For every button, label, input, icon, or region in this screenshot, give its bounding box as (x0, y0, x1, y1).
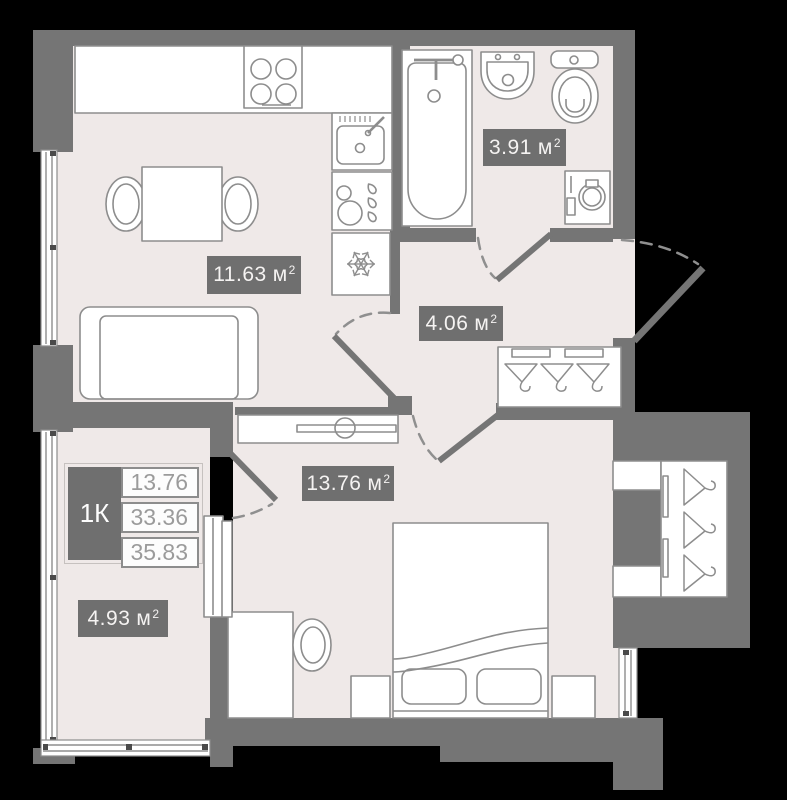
tv (297, 425, 396, 432)
refrigerator-icon (332, 233, 390, 295)
window-balcony-left (41, 430, 57, 744)
kitchen-sink-icon (332, 113, 392, 170)
unit-type-cell: 1К (68, 467, 121, 560)
area-label-balcony: 4.93м2 (78, 600, 168, 637)
dining-table (142, 167, 222, 241)
floor-plan-svg (0, 0, 787, 800)
sofa (80, 307, 258, 399)
hallway-closet (498, 347, 621, 407)
window-living-left (41, 150, 57, 346)
balcony-door-unit (204, 516, 232, 617)
dining-chair-left (106, 177, 146, 231)
area-summary-table: 1К 13.76 33.36 35.83 (64, 463, 203, 564)
toilet-icon (551, 51, 598, 123)
floor-plan-canvas: 11.63м2 3.91м2 4.06м2 13.76м2 4.93м2 1К … (0, 0, 787, 800)
nightstand-left (351, 676, 390, 718)
nightstand-right (552, 676, 595, 718)
area-values-column: 13.76 33.36 35.83 (121, 467, 199, 560)
tv-stand (238, 415, 398, 443)
desk-chair (293, 619, 331, 671)
bathtub-icon (402, 50, 472, 226)
area-label-hallway: 4.06м2 (419, 306, 503, 341)
total-area-cell: 35.83 (121, 537, 199, 568)
area-value: 13.76 (306, 472, 361, 496)
floor-entry-gap (613, 237, 635, 341)
window-balcony-bottom (41, 740, 210, 756)
apartment-area-cell: 33.36 (121, 502, 199, 533)
washbasin-icon (481, 52, 534, 99)
area-value: 11.63 (213, 263, 267, 287)
area-label-kitchen-living: 11.63м2 (207, 256, 301, 294)
stove-icon (244, 46, 302, 108)
door-leaf (634, 268, 703, 341)
living-area-cell: 13.76 (121, 467, 199, 498)
double-bed (393, 523, 548, 718)
kitchen-counter (75, 46, 392, 113)
area-label-bathroom: 3.91м2 (483, 129, 566, 166)
dishwasher-icon (332, 172, 392, 230)
area-value: 4.06 (426, 312, 469, 336)
dining-chair-right (218, 177, 258, 231)
desk (228, 612, 293, 718)
area-label-bedroom: 13.76м2 (302, 466, 394, 501)
area-value: 4.93 (88, 607, 131, 631)
area-value: 3.91 (489, 136, 532, 160)
window-bedroom-right (619, 648, 637, 718)
washing-machine-icon (565, 171, 610, 224)
